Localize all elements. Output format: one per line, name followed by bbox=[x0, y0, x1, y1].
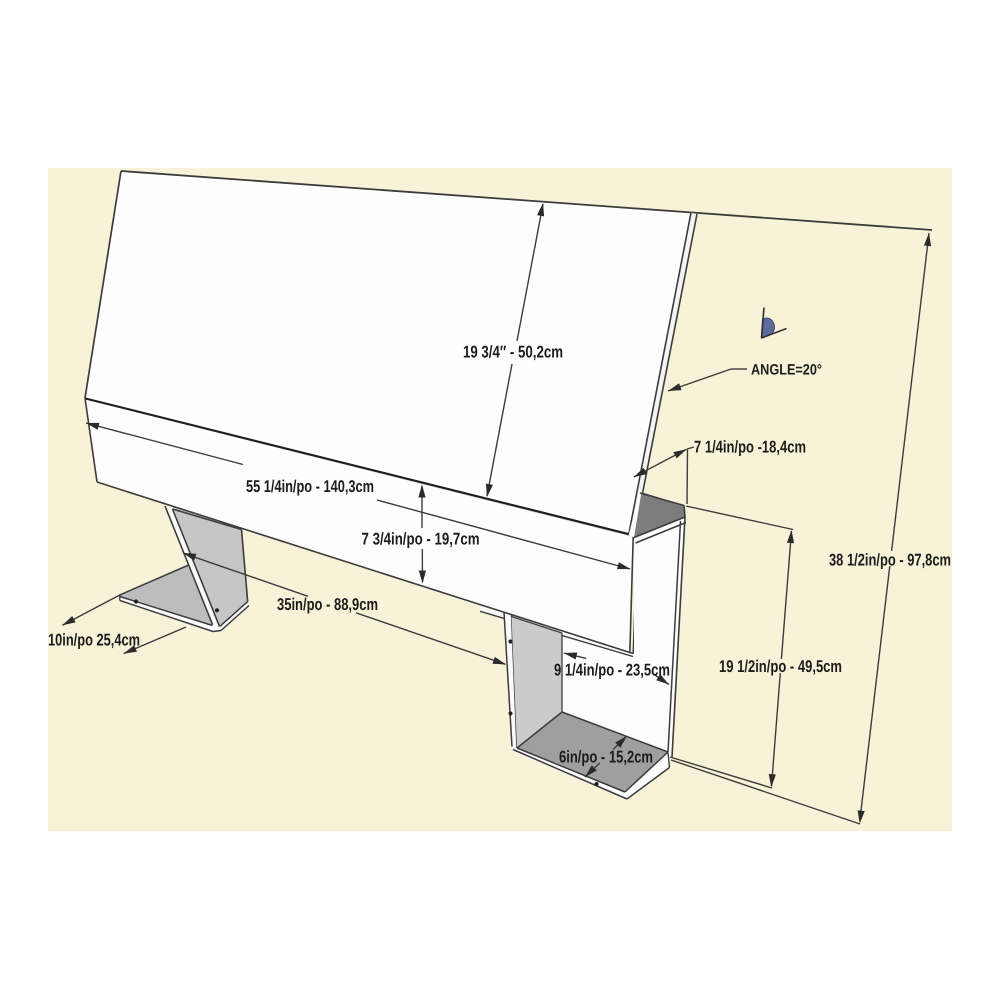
svg-text:7 3/4in/po - 19,7cm: 7 3/4in/po - 19,7cm bbox=[362, 530, 480, 549]
svg-text:7 1/4in/po -18,4cm: 7 1/4in/po -18,4cm bbox=[694, 438, 806, 457]
svg-text:19 1/2in/po - 49,5cm: 19 1/2in/po - 49,5cm bbox=[719, 657, 842, 676]
svg-text:ANGLE=20°: ANGLE=20° bbox=[751, 362, 822, 379]
svg-text:19 3/4″ - 50,2cm: 19 3/4″ - 50,2cm bbox=[463, 343, 563, 362]
svg-text:55 1/4in/po - 140,3cm: 55 1/4in/po - 140,3cm bbox=[246, 477, 374, 496]
svg-text:9 1/4in/po - 23,5cm: 9 1/4in/po - 23,5cm bbox=[554, 661, 670, 680]
svg-text:38 1/2in/po - 97,8cm: 38 1/2in/po - 97,8cm bbox=[829, 551, 951, 570]
svg-text:35in/po - 88,9cm: 35in/po - 88,9cm bbox=[277, 595, 378, 614]
svg-text:6in/po - 15,2cm: 6in/po - 15,2cm bbox=[559, 748, 653, 767]
svg-text:10in/po 25,4cm: 10in/po 25,4cm bbox=[48, 631, 140, 650]
